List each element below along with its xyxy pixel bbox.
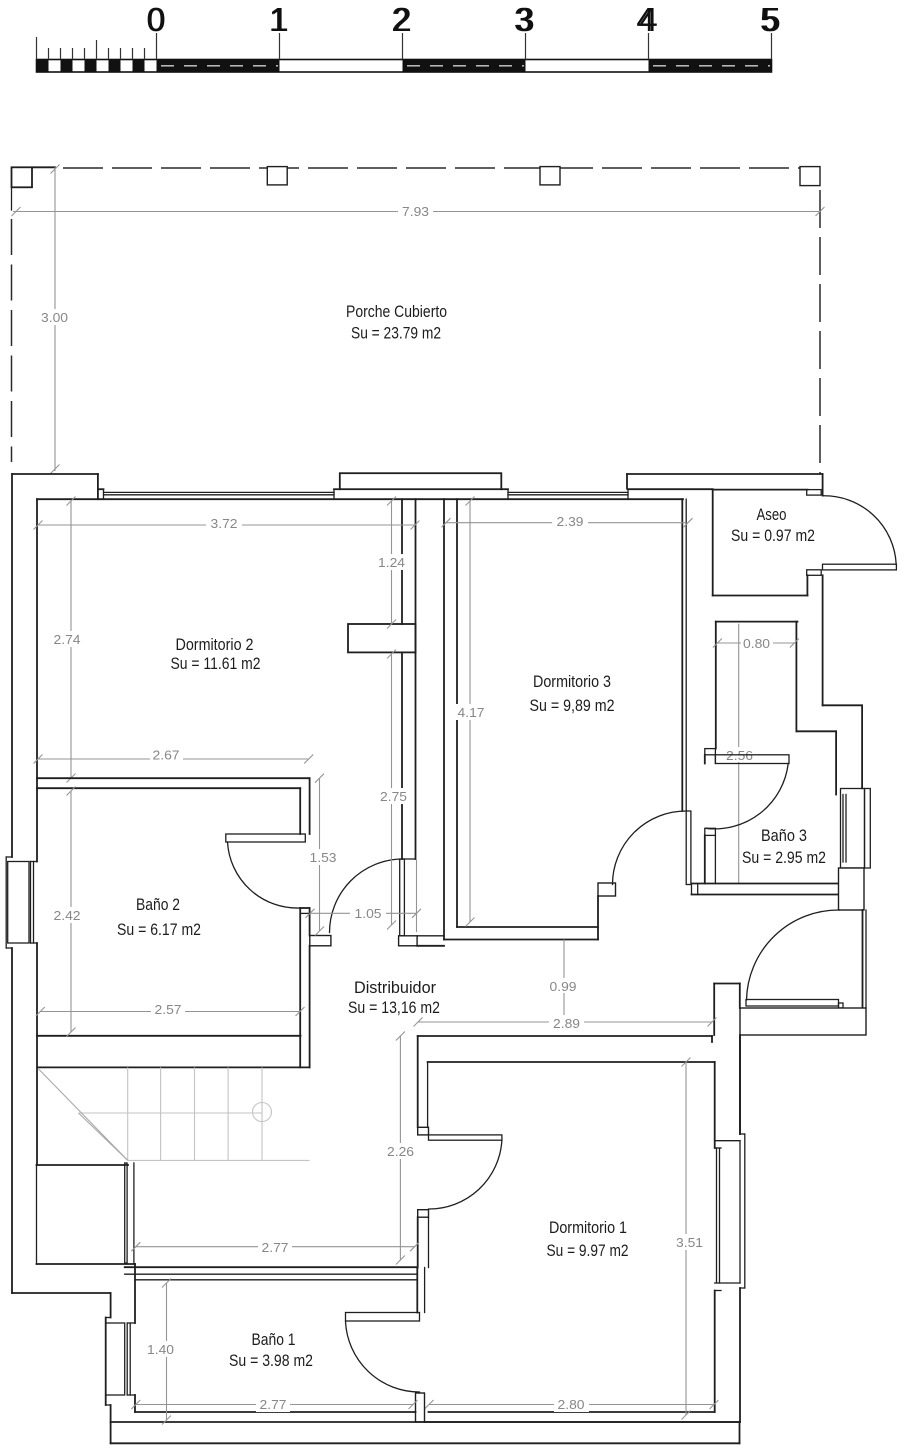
svg-text:1.53: 1.53 <box>310 850 337 865</box>
svg-text:2.77: 2.77 <box>262 1240 289 1255</box>
svg-text:Baño 1: Baño 1 <box>252 1330 296 1349</box>
svg-text:0.99: 0.99 <box>550 979 577 994</box>
svg-text:Distribuidor: Distribuidor <box>354 978 436 997</box>
svg-text:2.89: 2.89 <box>553 1016 580 1031</box>
svg-text:2.39: 2.39 <box>557 514 584 529</box>
svg-text:2.56: 2.56 <box>726 748 753 763</box>
svg-text:2.26: 2.26 <box>387 1144 414 1159</box>
svg-text:3.51: 3.51 <box>676 1235 703 1250</box>
svg-text:1: 1 <box>269 1 287 38</box>
svg-text:0: 0 <box>146 1 164 38</box>
svg-text:Su = 9,89 m2: Su = 9,89 m2 <box>530 696 615 715</box>
svg-text:4: 4 <box>636 1 654 38</box>
svg-text:Su = 3.98 m2: Su = 3.98 m2 <box>229 1351 313 1370</box>
svg-text:2.67: 2.67 <box>153 748 180 763</box>
svg-text:Su = 13,16 m2: Su = 13,16 m2 <box>348 998 440 1017</box>
svg-text:Aseo: Aseo <box>757 505 787 524</box>
svg-text:Porche Cubierto: Porche Cubierto <box>346 302 447 321</box>
svg-text:Su = 6.17 m2: Su = 6.17 m2 <box>117 920 201 939</box>
svg-text:1.05: 1.05 <box>355 906 382 921</box>
svg-text:Baño 2: Baño 2 <box>136 895 180 914</box>
svg-text:Su = 23.79 m2: Su = 23.79 m2 <box>351 324 441 343</box>
svg-text:2.74: 2.74 <box>54 632 81 647</box>
svg-text:2.80: 2.80 <box>558 1397 585 1412</box>
svg-text:3.00: 3.00 <box>41 310 68 325</box>
svg-text:Baño 3: Baño 3 <box>761 826 807 845</box>
svg-text:2.77: 2.77 <box>260 1397 287 1412</box>
svg-text:Dormitorio 1: Dormitorio 1 <box>549 1218 627 1237</box>
svg-text:Su = 9.97 m2: Su = 9.97 m2 <box>547 1241 629 1260</box>
svg-text:4.17: 4.17 <box>458 705 485 720</box>
svg-text:5: 5 <box>760 1 778 38</box>
svg-text:0.80: 0.80 <box>743 636 770 651</box>
svg-text:1.24: 1.24 <box>378 555 405 570</box>
svg-text:Dormitorio 2: Dormitorio 2 <box>176 635 254 654</box>
svg-text:7.93: 7.93 <box>402 204 429 219</box>
svg-text:Su = 11.61 m2: Su = 11.61 m2 <box>171 654 261 673</box>
svg-text:Su = 2.95 m2: Su = 2.95 m2 <box>742 848 826 867</box>
svg-text:2: 2 <box>391 1 409 38</box>
svg-text:Dormitorio 3: Dormitorio 3 <box>533 672 611 691</box>
svg-text:2.42: 2.42 <box>54 908 81 923</box>
svg-text:2.75: 2.75 <box>380 789 407 804</box>
svg-text:1.40: 1.40 <box>147 1342 174 1357</box>
svg-text:Su = 0.97 m2: Su = 0.97 m2 <box>731 526 815 545</box>
svg-text:3: 3 <box>514 1 532 38</box>
svg-text:2.57: 2.57 <box>155 1002 182 1017</box>
svg-text:3.72: 3.72 <box>211 516 238 531</box>
